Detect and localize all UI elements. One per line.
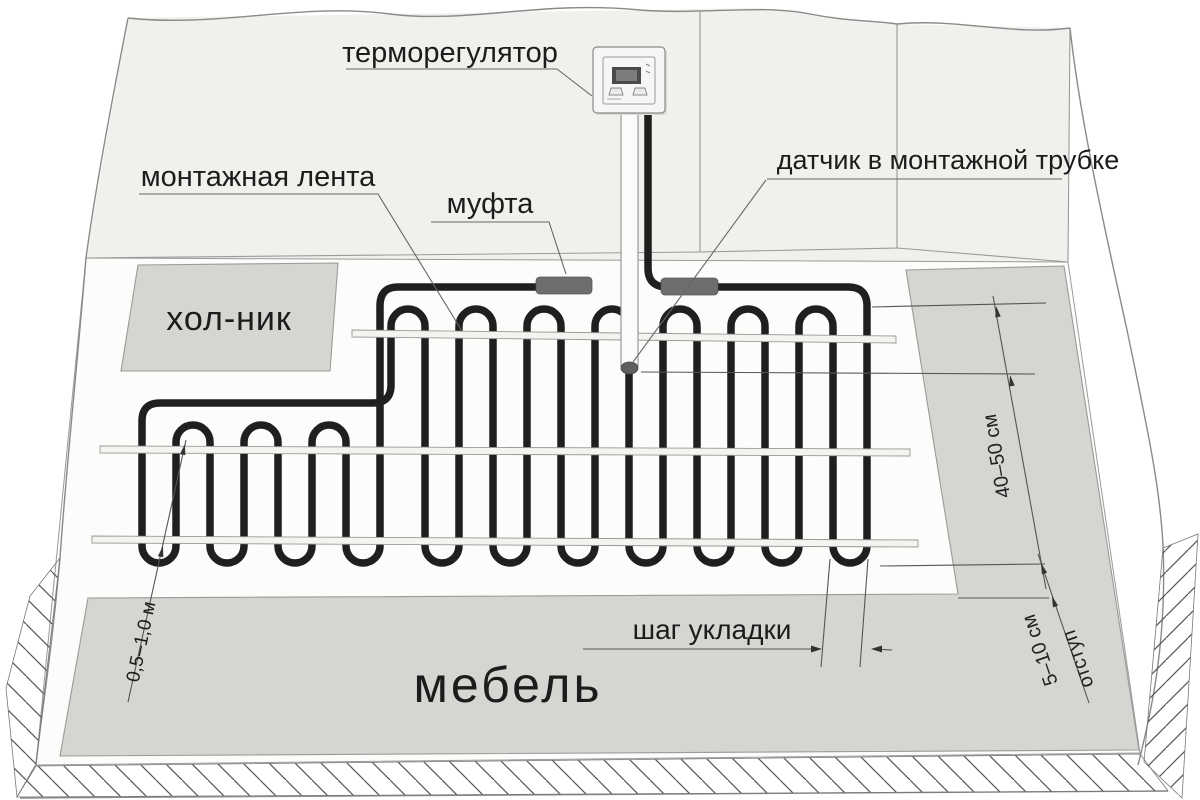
heating-cable-installation-diagram: терморегулятор монтажная лента муфта дат… xyxy=(0,0,1200,800)
thermostat-device xyxy=(593,47,667,115)
coupling-label: муфта xyxy=(447,188,535,220)
sensor-tip xyxy=(621,362,638,374)
back-wall xyxy=(86,8,1070,262)
sensor-tube xyxy=(621,110,638,368)
sensor-label: датчик в монтажной трубке xyxy=(777,145,1119,175)
furniture-label: мебель xyxy=(413,657,602,713)
mounting-tape-label: монтажная лента xyxy=(141,161,376,193)
thermostat-button-left xyxy=(609,88,623,95)
coupling-left xyxy=(536,277,592,294)
laying-step-label: шаг укладки xyxy=(633,614,792,645)
fridge-label: хол-ник xyxy=(166,300,292,338)
thermostat-label: терморегулятор xyxy=(342,37,558,69)
diagram-canvas: терморегулятор монтажная лента муфта дат… xyxy=(0,0,1200,800)
hatch-band-right xyxy=(1144,534,1198,798)
coupling-right xyxy=(661,278,718,295)
thermostat-button-right xyxy=(633,88,647,95)
